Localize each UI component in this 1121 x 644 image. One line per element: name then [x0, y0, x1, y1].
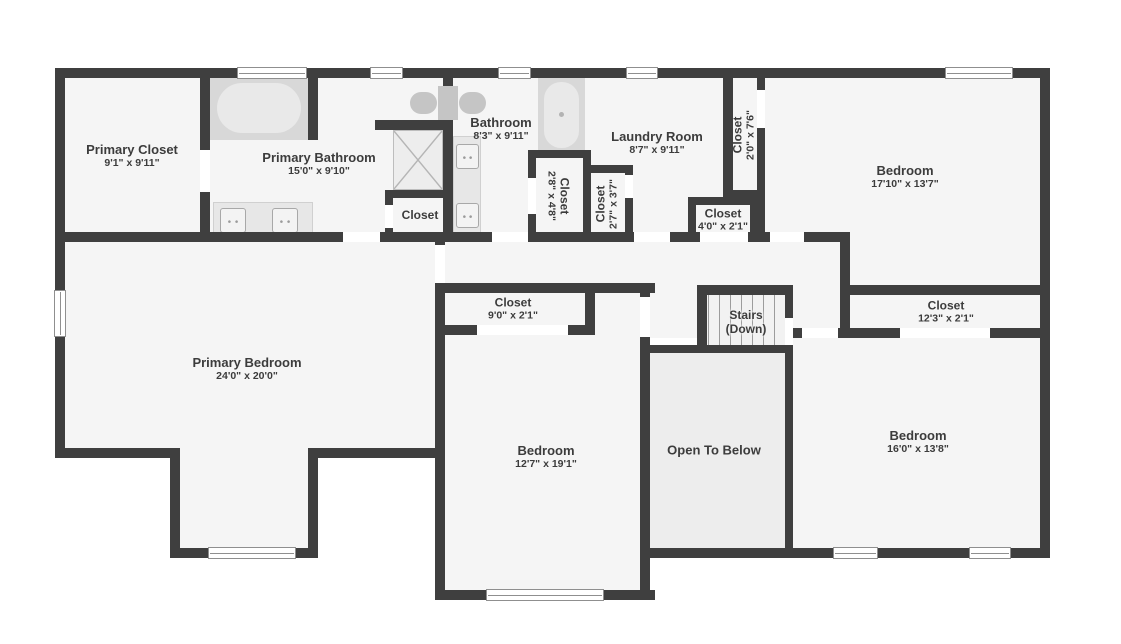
room-label-closet-bedroom-mid: Closet 9'0" x 2'1": [488, 296, 538, 323]
room-label-primary-closet: Primary Closet 9'1" x 9'11": [86, 142, 178, 170]
room-label-stairs: Stairs (Down): [726, 308, 767, 336]
wall-segment: [757, 128, 765, 238]
wall-segment: [308, 448, 440, 458]
room-dims: 16'0" x 13'8": [887, 443, 949, 456]
room-label-bedroom-top-right: Bedroom 17'10" x 13'7": [871, 163, 939, 191]
room-label-bathroom: Bathroom 8'3" x 9'11": [470, 115, 531, 143]
room-dims: 12'3" x 2'1": [918, 313, 974, 326]
room-dims: 24'0" x 20'0": [192, 370, 301, 383]
wall-segment: [990, 328, 1050, 338]
room-label-closet-bath-right: Closet 2'7" x 3'7": [594, 179, 621, 229]
room-name: Open To Below: [667, 443, 761, 458]
door-opening: [640, 297, 650, 337]
wall-segment: [528, 232, 634, 242]
room-dims: 17'10" x 13'7": [871, 178, 939, 191]
door-opening: [785, 318, 793, 345]
room-label-primary-bedroom: Primary Bedroom 24'0" x 20'0": [192, 355, 301, 383]
wall-segment: [697, 285, 793, 295]
room-label-closet-bath-left: Closet 2'8" x 4'8": [545, 171, 572, 221]
wall-segment: [757, 68, 765, 90]
wall-segment: [375, 120, 445, 130]
bathtub-icon: [208, 76, 310, 140]
room-name: Primary Closet: [86, 142, 178, 157]
wall-segment: [435, 283, 655, 293]
door-opening: [528, 178, 536, 214]
wall-segment: [585, 283, 595, 335]
wall-segment: [640, 548, 833, 558]
room-label-open-to-below: Open To Below: [667, 443, 761, 458]
room-label-primary-bathroom: Primary Bathroom 15'0" x 9'10": [262, 150, 375, 178]
window: [969, 547, 1011, 559]
wall-segment: [785, 345, 793, 553]
window: [498, 67, 531, 79]
wall-segment: [308, 78, 318, 140]
wall-segment: [200, 68, 210, 150]
door-opening: [385, 205, 393, 228]
door-opening: [625, 175, 633, 198]
room-name: Closet: [698, 207, 748, 221]
room-name: (Down): [726, 322, 767, 336]
window: [370, 67, 403, 79]
room-name: Bedroom: [515, 443, 577, 458]
room-name: Primary Bathroom: [262, 150, 375, 165]
wall-segment: [688, 197, 758, 205]
room-dims: 9'0" x 2'1": [488, 310, 538, 323]
room-label-laundry-room: Laundry Room 8'7" x 9'11": [611, 129, 703, 157]
window: [54, 290, 66, 337]
wall-segment: [878, 548, 969, 558]
room-name: Closet: [402, 208, 439, 222]
door-opening: [477, 325, 568, 335]
wall-segment: [748, 232, 770, 242]
door-opening: [343, 232, 380, 242]
room-label-closet-bedroom-right: Closet 12'3" x 2'1": [918, 299, 974, 326]
wall-segment: [385, 198, 393, 205]
wall-segment: [1040, 68, 1050, 558]
room-name: Primary Bedroom: [192, 355, 301, 370]
room-dims: 4'0" x 2'1": [698, 221, 748, 234]
toilet-bowl: [459, 92, 486, 114]
room-name: Stairs: [726, 308, 767, 322]
door-opening: [802, 328, 838, 338]
room-label-closet-top-right: Closet 2'0" x 7'6": [731, 110, 758, 160]
room-dims: 12'7" x 19'1": [515, 458, 577, 471]
door-opening: [492, 232, 528, 242]
wall-segment: [55, 232, 343, 242]
toilet-tank: [438, 86, 458, 120]
floor-primary-bedroom: [60, 237, 440, 453]
room-name: Closet: [488, 296, 538, 310]
door-opening: [200, 150, 210, 192]
room-dims: 2'8" x 4'8": [545, 171, 558, 221]
wall-segment: [793, 328, 802, 338]
wall-segment: [840, 285, 1050, 295]
window: [626, 67, 658, 79]
window: [486, 589, 604, 601]
room-label-closet-hall: Closet 4'0" x 2'1": [698, 207, 748, 234]
room-name: Laundry Room: [611, 129, 703, 144]
door-opening: [770, 232, 804, 242]
room-dims: 2'7" x 3'7": [608, 179, 621, 229]
wall-segment: [625, 165, 633, 175]
double-sink-vanity-icon: [213, 202, 313, 234]
bathtub-drain: [559, 112, 564, 117]
wall-segment: [55, 448, 180, 458]
wall-segment: [640, 285, 650, 297]
door-opening: [757, 90, 765, 128]
wall-segment: [583, 150, 591, 238]
wall-segment: [385, 190, 445, 198]
wall-segment: [170, 448, 180, 558]
door-opening: [900, 328, 990, 338]
shower-icon: [393, 130, 443, 190]
room-dims: 2'0" x 7'6": [745, 110, 758, 160]
door-opening: [700, 232, 748, 242]
room-name: Bedroom: [871, 163, 939, 178]
room-label-closet-primary-bath: Closet: [402, 208, 439, 222]
wall-segment: [308, 448, 318, 558]
window: [237, 67, 307, 79]
room-name: Closet: [594, 179, 608, 229]
sink-icon: [456, 203, 479, 228]
wall-segment: [435, 238, 445, 245]
bathtub-basin: [217, 83, 301, 133]
window: [208, 547, 296, 559]
window: [833, 547, 878, 559]
room-label-bedroom-bottom-right: Bedroom 16'0" x 13'8": [887, 428, 949, 456]
sink-icon: [220, 208, 246, 233]
door-opening: [435, 245, 445, 283]
window: [945, 67, 1013, 79]
toilet-bowl: [410, 92, 437, 114]
bathtub-icon: [538, 76, 585, 155]
sink-icon: [272, 208, 298, 233]
wall-segment: [670, 232, 700, 242]
wall-segment: [528, 150, 588, 158]
room-name: Closet: [731, 110, 745, 160]
sink-icon: [456, 144, 479, 169]
floor-plan: Primary Closet 9'1" x 9'11" Primary Bath…: [0, 0, 1121, 644]
wall-segment: [55, 68, 65, 458]
room-dims: 8'3" x 9'11": [470, 130, 531, 143]
wall-segment: [1011, 548, 1050, 558]
floor-primary-bedroom-nook: [175, 453, 313, 553]
room-name: Bedroom: [887, 428, 949, 443]
room-name: Bathroom: [470, 115, 531, 130]
room-dims: 15'0" x 9'10": [262, 165, 375, 178]
wall-segment: [785, 285, 793, 318]
wall-segment: [640, 345, 793, 353]
door-opening: [634, 232, 670, 242]
wall-segment: [838, 328, 900, 338]
room-dims: 8'7" x 9'11": [611, 144, 703, 157]
wall-segment: [528, 158, 536, 178]
wall-segment: [440, 325, 477, 335]
room-dims: 9'1" x 9'11": [86, 157, 178, 170]
double-sink-vanity-icon: [453, 136, 481, 235]
room-label-bedroom-mid: Bedroom 12'7" x 19'1": [515, 443, 577, 471]
wall-segment: [640, 337, 650, 600]
room-name: Closet: [918, 299, 974, 313]
wall-segment: [697, 285, 707, 353]
room-name: Closet: [558, 171, 572, 221]
